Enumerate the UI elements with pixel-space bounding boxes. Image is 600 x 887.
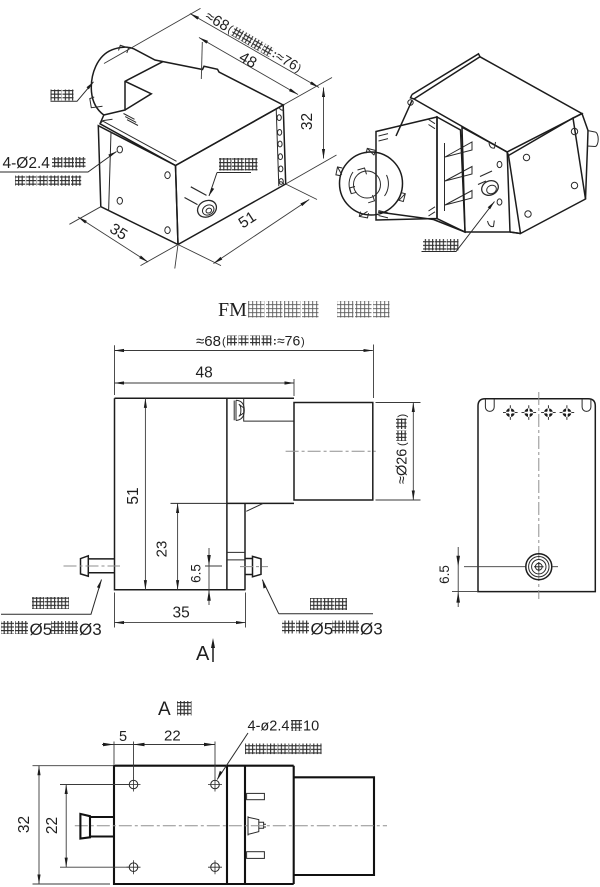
svg-text:32: 32 bbox=[16, 816, 33, 833]
svg-text:Ø5: Ø5 bbox=[311, 620, 334, 639]
svg-text:Ø3: Ø3 bbox=[360, 620, 383, 639]
svg-text:≈Ø26: ≈Ø26 bbox=[395, 449, 411, 484]
svg-text:10: 10 bbox=[303, 719, 319, 735]
svg-text:A: A bbox=[158, 699, 171, 720]
svg-text:22: 22 bbox=[44, 817, 61, 834]
svg-text:22: 22 bbox=[164, 728, 181, 745]
svg-text:≈68: ≈68 bbox=[196, 333, 221, 350]
svg-text:(: ( bbox=[397, 442, 409, 446]
svg-text:≈76: ≈76 bbox=[277, 333, 300, 349]
svg-text:4-Ø2.4: 4-Ø2.4 bbox=[3, 155, 51, 172]
svg-text:5: 5 bbox=[119, 729, 127, 745]
svg-text:48: 48 bbox=[196, 365, 213, 382]
svg-text:Ø3: Ø3 bbox=[79, 620, 102, 639]
svg-text:A: A bbox=[196, 643, 210, 665]
svg-text:32: 32 bbox=[299, 113, 316, 130]
svg-text:23: 23 bbox=[154, 541, 171, 558]
svg-text:(: ( bbox=[222, 336, 226, 348]
svg-text:51: 51 bbox=[125, 487, 142, 504]
svg-text:4-ø2.4: 4-ø2.4 bbox=[248, 719, 290, 735]
svg-text:): ) bbox=[301, 336, 305, 348]
svg-text:): ) bbox=[397, 414, 409, 418]
svg-text:FM: FM bbox=[218, 299, 247, 321]
svg-text:6.5: 6.5 bbox=[189, 564, 204, 583]
svg-text:6.5: 6.5 bbox=[437, 565, 452, 584]
svg-text:Ø5: Ø5 bbox=[30, 620, 53, 639]
svg-text:35: 35 bbox=[173, 605, 190, 622]
